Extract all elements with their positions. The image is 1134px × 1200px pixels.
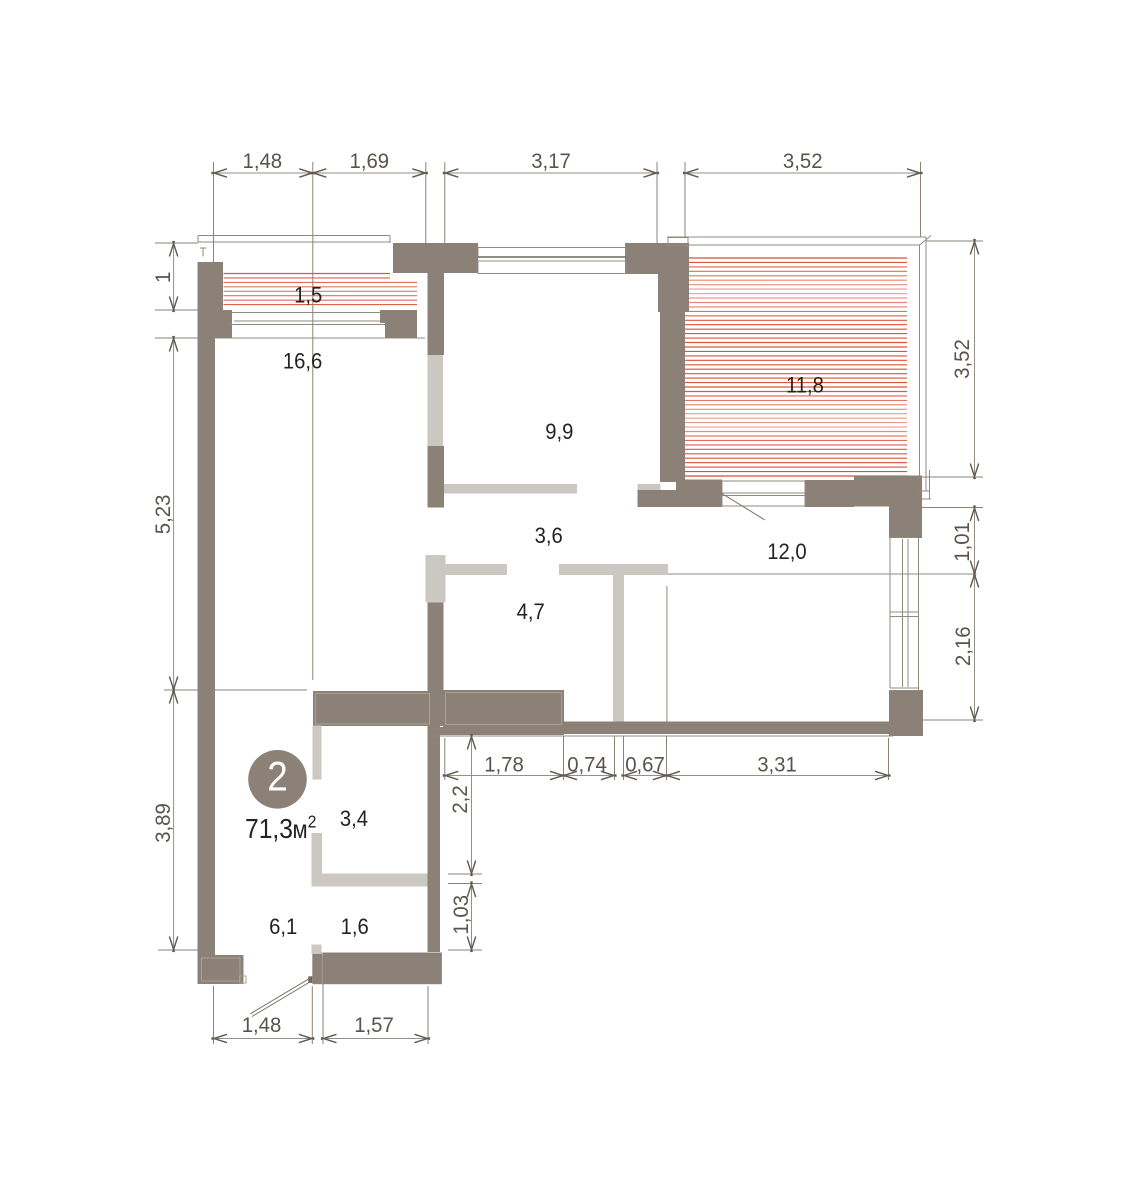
svg-text:3,6: 3,6 xyxy=(535,524,563,548)
svg-text:4,7: 4,7 xyxy=(517,600,545,624)
svg-text:1,57: 1,57 xyxy=(354,1014,394,1037)
svg-text:3,52: 3,52 xyxy=(783,150,823,173)
svg-text:3,31: 3,31 xyxy=(757,753,797,776)
svg-text:1,5: 1,5 xyxy=(294,284,322,308)
svg-text:3,4: 3,4 xyxy=(340,807,368,831)
svg-text:3,52: 3,52 xyxy=(951,339,974,379)
svg-text:11,8: 11,8 xyxy=(786,374,824,398)
svg-text:3,89: 3,89 xyxy=(152,803,175,843)
svg-text:5,23: 5,23 xyxy=(152,495,175,535)
svg-text:12,0: 12,0 xyxy=(767,540,806,564)
svg-text:16,6: 16,6 xyxy=(283,350,322,374)
svg-text:9,9: 9,9 xyxy=(545,420,573,444)
svg-text:2: 2 xyxy=(267,753,288,800)
svg-text:2,16: 2,16 xyxy=(952,626,975,666)
svg-text:1,69: 1,69 xyxy=(349,150,389,173)
svg-text:1,78: 1,78 xyxy=(484,753,524,776)
svg-text:0,67: 0,67 xyxy=(625,753,665,776)
svg-text:0,74: 0,74 xyxy=(567,753,607,776)
svg-text:71,3: 71,3 xyxy=(245,813,293,845)
svg-text:1,6: 1,6 xyxy=(341,915,369,939)
svg-text:6,1: 6,1 xyxy=(269,915,297,939)
svg-text:1: 1 xyxy=(152,272,175,283)
svg-text:1,03: 1,03 xyxy=(450,895,473,935)
svg-text:1,48: 1,48 xyxy=(242,150,282,173)
svg-text:2,2: 2,2 xyxy=(449,785,472,813)
svg-text:1,48: 1,48 xyxy=(242,1014,282,1037)
svg-text:3,17: 3,17 xyxy=(531,150,571,173)
svg-text:1,01: 1,01 xyxy=(951,522,974,562)
